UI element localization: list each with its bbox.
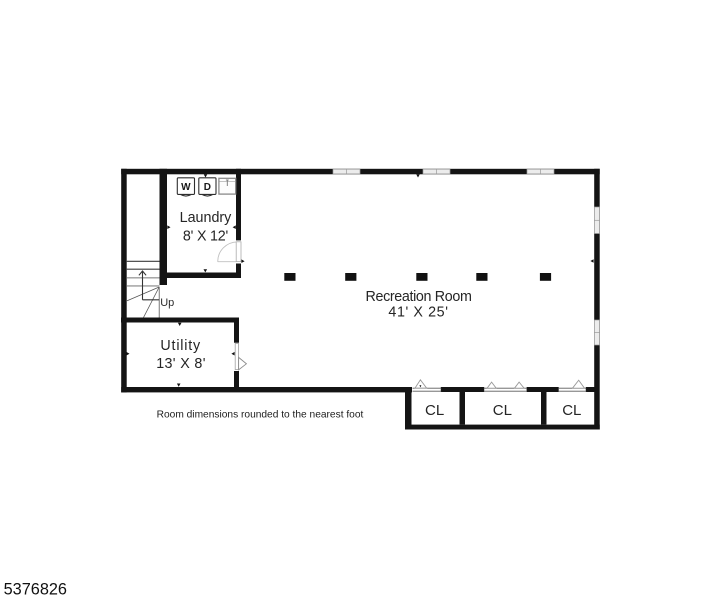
svg-text:CL: CL — [493, 402, 512, 419]
svg-text:Room dimensions rounded to the: Room dimensions rounded to the nearest f… — [157, 409, 364, 420]
svg-text:13' X 8': 13' X 8' — [156, 356, 206, 372]
svg-text:Recreation Room: Recreation Room — [366, 289, 472, 305]
svg-text:Utility: Utility — [160, 338, 201, 354]
svg-text:Up: Up — [160, 297, 174, 309]
svg-text:W: W — [181, 182, 191, 193]
svg-text:5376826: 5376826 — [4, 581, 67, 599]
svg-text:CL: CL — [562, 402, 581, 419]
svg-text:Laundry: Laundry — [180, 210, 233, 226]
svg-text:8' X 12': 8' X 12' — [183, 228, 229, 244]
svg-text:41' X 25': 41' X 25' — [388, 305, 448, 321]
svg-text:CL: CL — [425, 402, 444, 419]
svg-text:D: D — [204, 182, 211, 193]
